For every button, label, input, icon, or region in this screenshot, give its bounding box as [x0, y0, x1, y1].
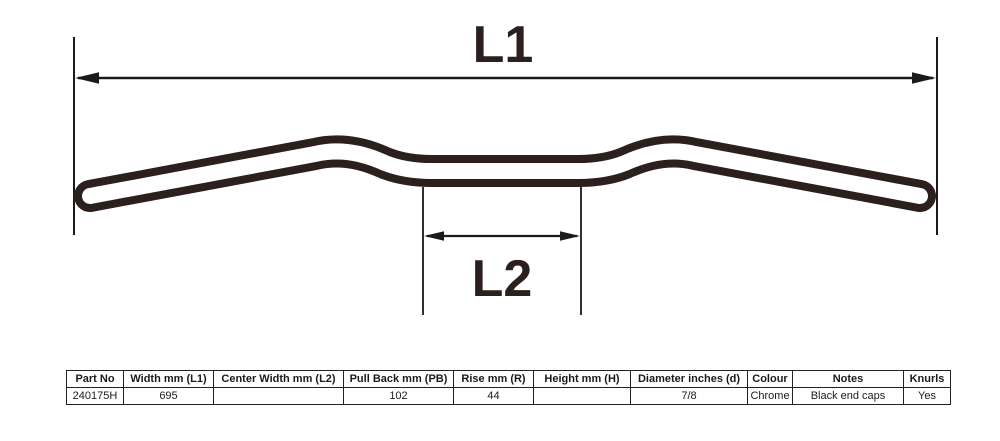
cell-height [534, 388, 631, 405]
cell-width-l1: 695 [124, 388, 214, 405]
header-width-l1: Width mm (L1) [124, 371, 214, 388]
cell-pull-back: 102 [344, 388, 454, 405]
l1-right-arrowhead-icon [912, 72, 936, 84]
l1-left-arrowhead-icon [75, 72, 99, 84]
cell-rise: 44 [454, 388, 534, 405]
header-knurls: Knurls [904, 371, 951, 388]
spec-table-header-row: Part No Width mm (L1) Center Width mm (L… [67, 371, 951, 388]
l2-right-arrowhead-icon [560, 231, 580, 241]
handlebar-spec-page: L1 L2 Part No Width mm (L1) Center Width… [0, 0, 1000, 441]
header-rise: Rise mm (R) [454, 371, 534, 388]
header-diameter: Diameter inches (d) [631, 371, 748, 388]
header-pull-back: Pull Back mm (PB) [344, 371, 454, 388]
spec-table-data-row: 240175H 695 102 44 7/8 Chrome Black end … [67, 388, 951, 405]
header-height: Height mm (H) [534, 371, 631, 388]
header-notes: Notes [793, 371, 904, 388]
l1-dimension-label: L1 [473, 16, 534, 74]
handlebar-diagram: L1 L2 [0, 0, 1000, 340]
header-center-width-l2: Center Width mm (L2) [214, 371, 344, 388]
l2-left-arrowhead-icon [424, 231, 444, 241]
cell-notes: Black end caps [793, 388, 904, 405]
l2-dimension-label: L2 [472, 250, 533, 308]
header-colour: Colour [748, 371, 793, 388]
cell-colour: Chrome [748, 388, 793, 405]
cell-knurls: Yes [904, 388, 951, 405]
spec-table: Part No Width mm (L1) Center Width mm (L… [66, 370, 951, 405]
cell-part-no: 240175H [67, 388, 124, 405]
cell-center-width-l2 [214, 388, 344, 405]
header-part-no: Part No [67, 371, 124, 388]
cell-diameter: 7/8 [631, 388, 748, 405]
